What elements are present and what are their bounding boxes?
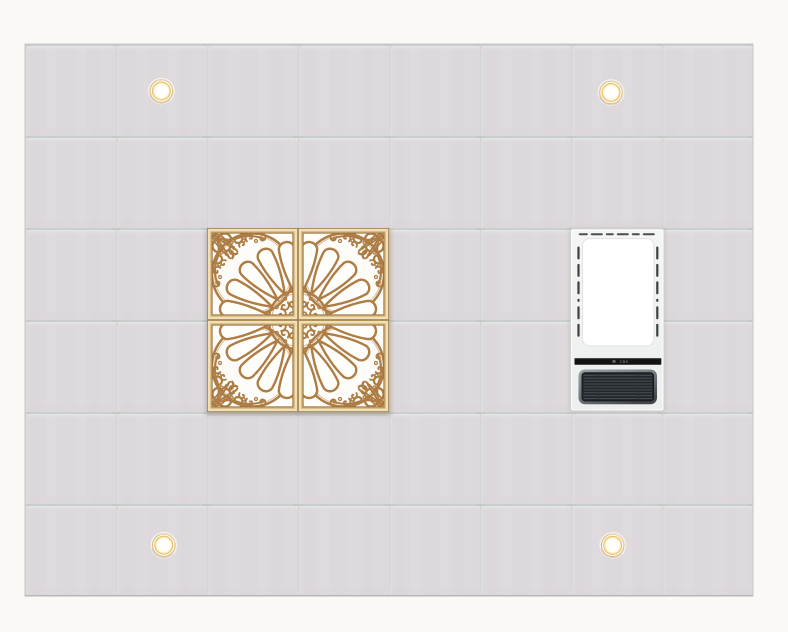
svg-text:CBS: CBS: [619, 360, 628, 364]
